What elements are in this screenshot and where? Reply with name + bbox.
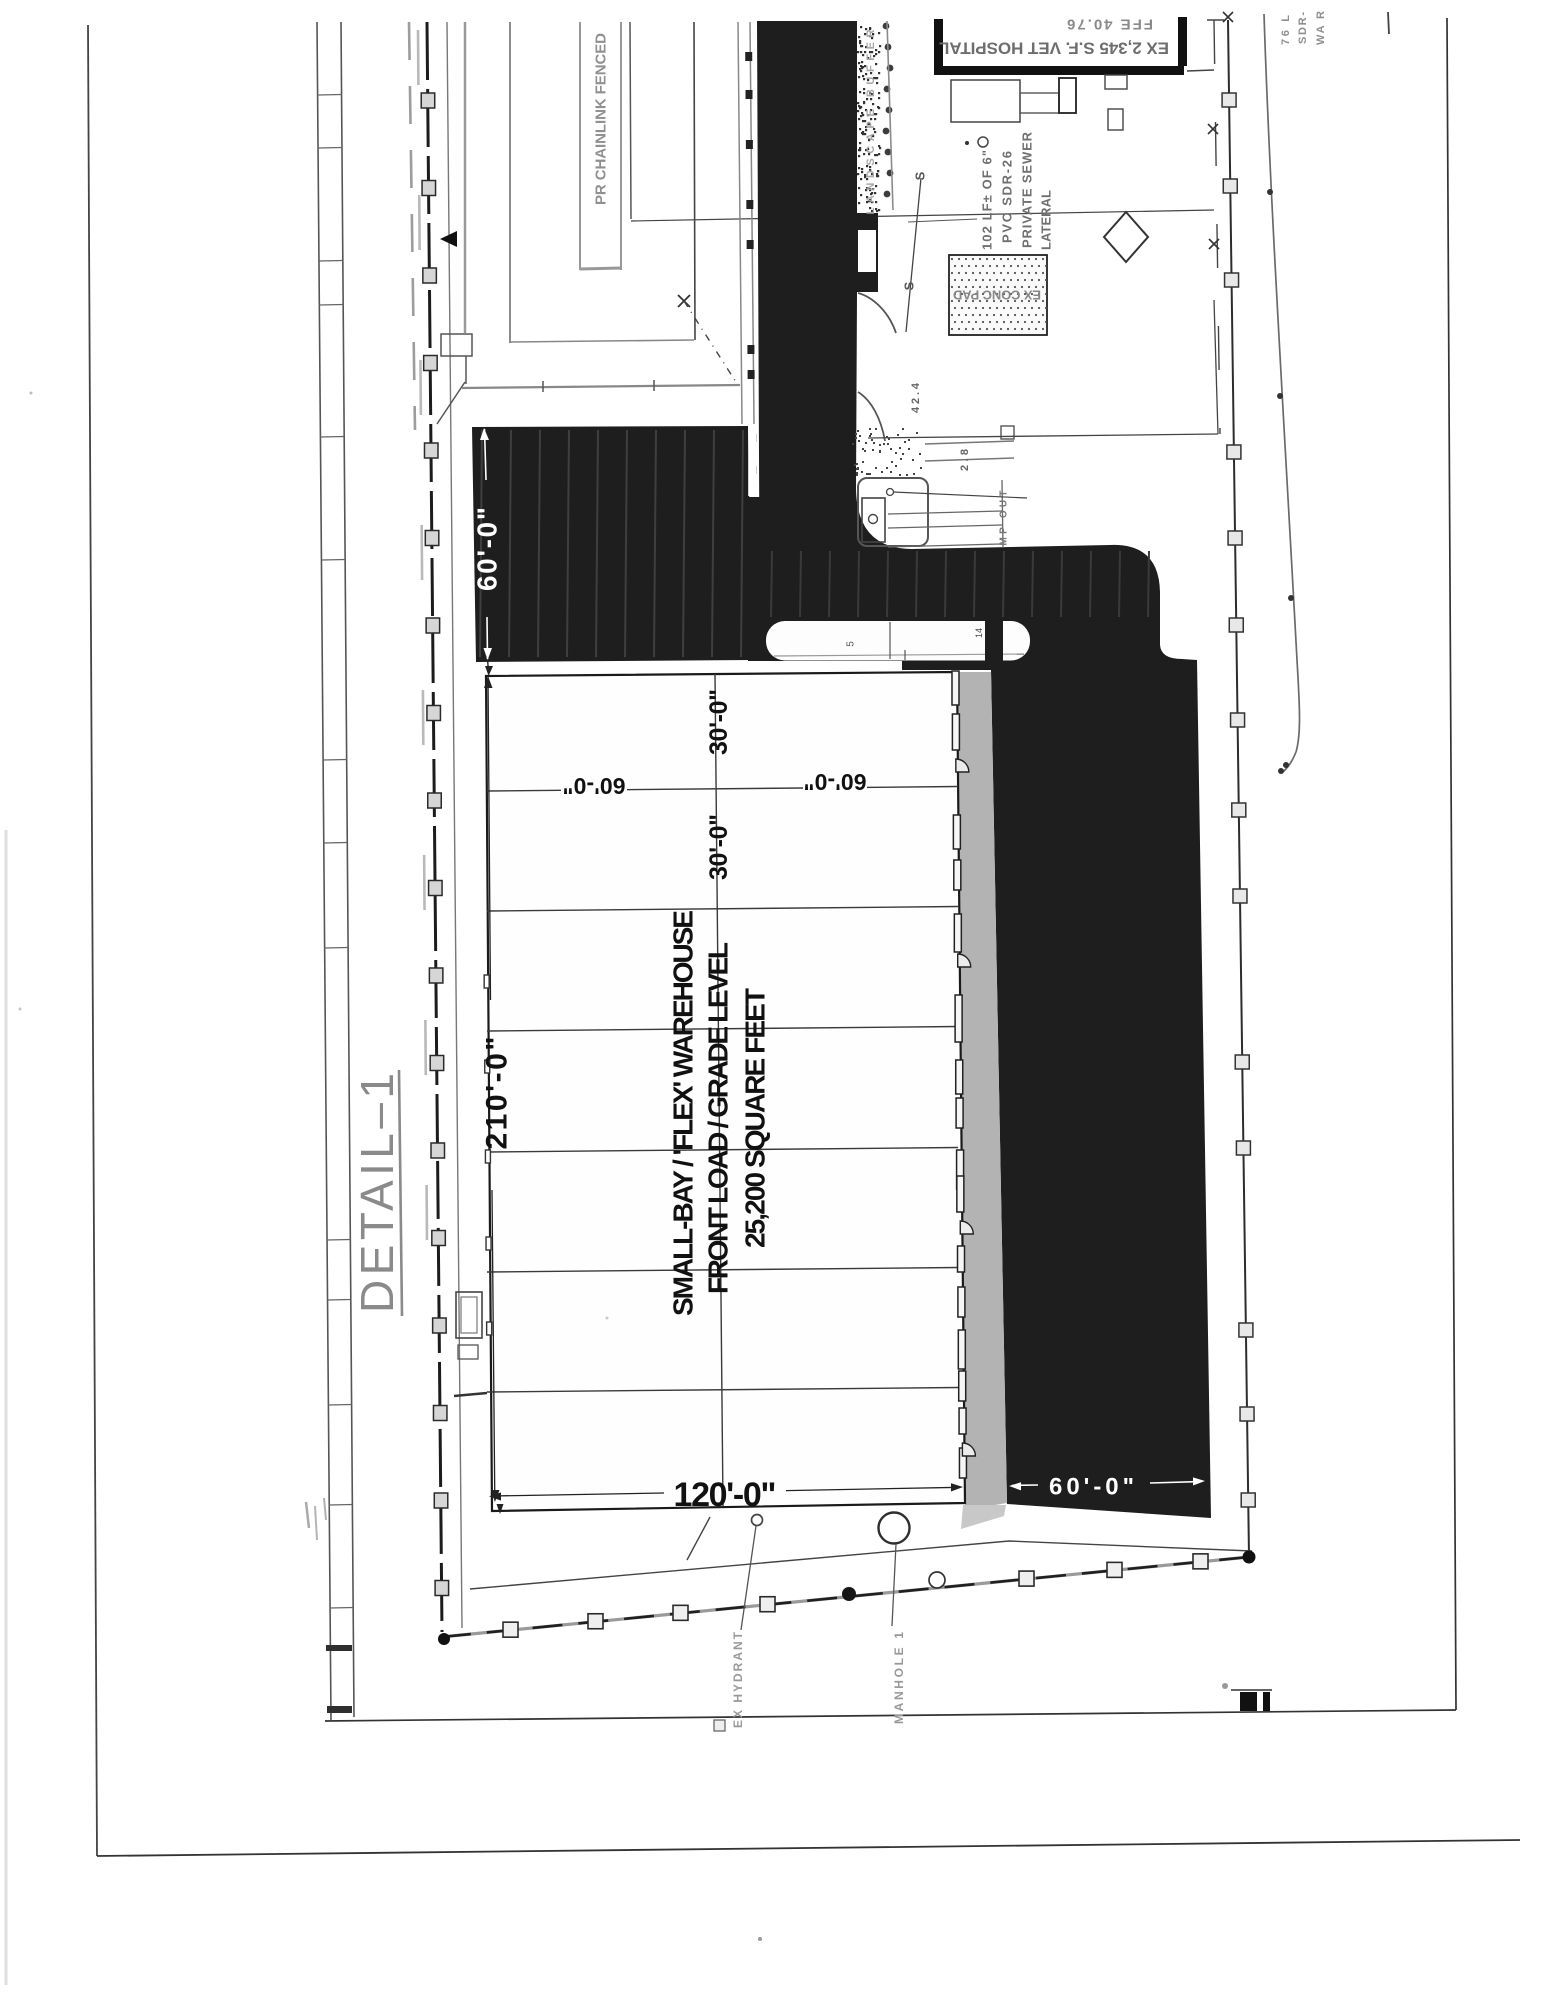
svg-text:EX 2,345 S.F. VET HOSPITAL: EX 2,345 S.F. VET HOSPITAL	[939, 39, 1169, 58]
svg-text:WA R: WA R	[1315, 11, 1327, 45]
svg-text:S: S	[913, 171, 928, 180]
svg-text:LANDSCAPE BUFFER: LANDSCAPE BUFFER	[865, 29, 877, 214]
svg-text:60'-0": 60'-0"	[563, 773, 626, 799]
svg-text:MANHOLE 1: MANHOLE 1	[892, 1632, 906, 1724]
svg-text:60'-0": 60'-0"	[472, 507, 503, 591]
svg-text:DETAIL–1: DETAIL–1	[351, 1071, 403, 1313]
svg-text:FFE 40.76: FFE 40.76	[1067, 16, 1153, 33]
svg-text:MP OUT: MP OUT	[999, 491, 1010, 546]
svg-text:PR CHAINLINK FENCED: PR CHAINLINK FENCED	[593, 33, 610, 205]
svg-text:102 LF± OF 6": 102 LF± OF 6"	[980, 150, 995, 250]
svg-text:SMALL-BAY / 'FLEX' WAREHOUSE: SMALL-BAY / 'FLEX' WAREHOUSE	[668, 910, 699, 1316]
svg-text:30'-0": 30'-0"	[705, 689, 733, 755]
svg-text:30'-0": 30'-0"	[705, 814, 733, 880]
svg-text:42.4: 42.4	[910, 382, 922, 413]
svg-text:76 L: 76 L	[1280, 15, 1292, 45]
svg-text:60'-0": 60'-0"	[1049, 1474, 1137, 1501]
svg-text:EX CONC PAD: EX CONC PAD	[953, 288, 1041, 303]
svg-text:PVC SDR-26: PVC SDR-26	[1000, 151, 1015, 243]
svg-text:2.8: 2.8	[959, 449, 971, 471]
svg-text:14: 14	[974, 628, 984, 638]
svg-text:EX HYDRANT: EX HYDRANT	[731, 1631, 745, 1728]
svg-text:5: 5	[846, 641, 857, 647]
svg-text:120'-0": 120'-0"	[674, 1476, 777, 1514]
svg-text:FRONT LOAD / GRADE LEVEL: FRONT LOAD / GRADE LEVEL	[703, 942, 734, 1294]
svg-text:S: S	[902, 281, 917, 290]
svg-text:60'-0": 60'-0"	[804, 769, 867, 795]
svg-text:25,200 SQUARE FEET: 25,200 SQUARE FEET	[740, 988, 771, 1248]
svg-text:SDR-: SDR-	[1297, 12, 1309, 44]
svg-text:PRIVATE SEWER: PRIVATE SEWER	[1020, 131, 1035, 248]
svg-text:LATERAL: LATERAL	[1039, 190, 1054, 250]
